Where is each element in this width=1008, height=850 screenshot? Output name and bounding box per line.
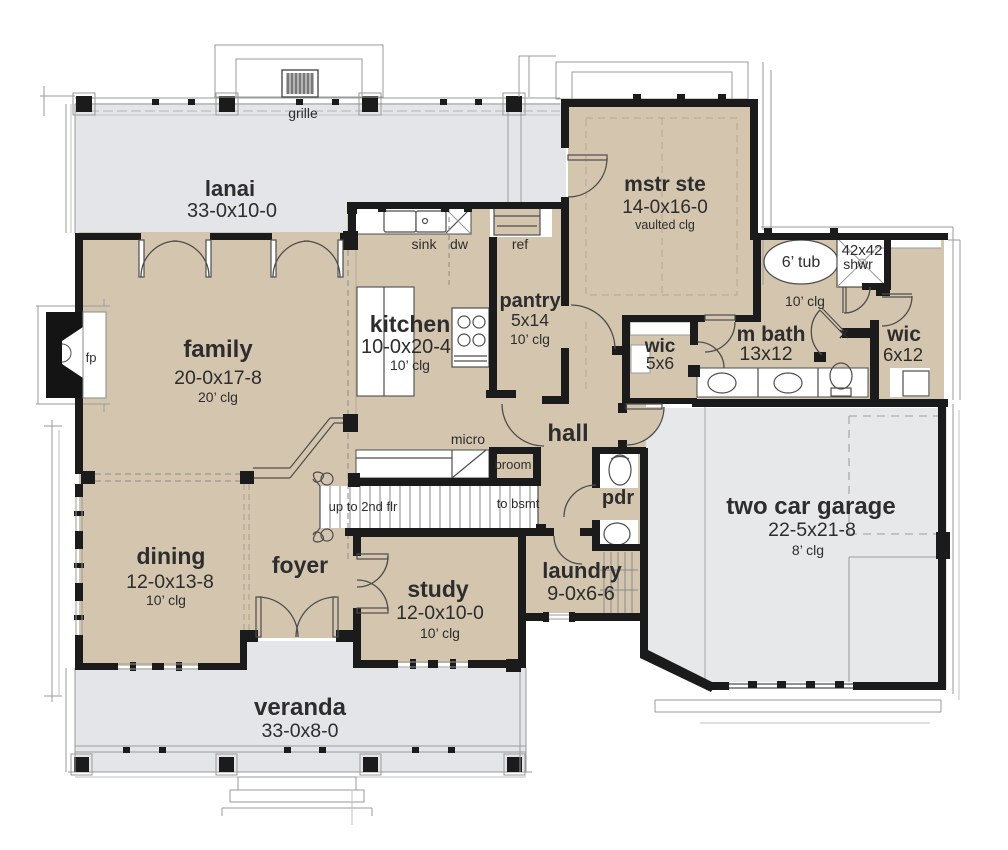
svg-text:10’ clg: 10’ clg [146, 592, 186, 608]
svg-text:14-0x16-0: 14-0x16-0 [622, 197, 708, 218]
svg-text:22-5x21-8: 22-5x21-8 [768, 519, 856, 541]
svg-text:10’ clg: 10’ clg [390, 357, 430, 373]
svg-text:dining: dining [137, 543, 206, 569]
svg-text:10’ clg: 10’ clg [420, 625, 460, 641]
svg-text:pdr: pdr [602, 487, 634, 509]
svg-text:20-0x17-8: 20-0x17-8 [174, 367, 262, 389]
svg-text:sink: sink [412, 236, 438, 252]
svg-text:kitchen: kitchen [370, 311, 451, 337]
svg-text:5x6: 5x6 [646, 353, 674, 373]
svg-text:vaulted clg: vaulted clg [635, 218, 695, 232]
svg-text:ref: ref [512, 236, 528, 252]
svg-text:grille: grille [288, 105, 318, 121]
svg-text:hall: hall [547, 420, 588, 447]
svg-text:20’ clg: 20’ clg [198, 389, 238, 405]
svg-text:10’ clg: 10’ clg [785, 293, 825, 309]
svg-text:laundry: laundry [542, 558, 622, 583]
svg-text:10-0x20-4: 10-0x20-4 [361, 336, 451, 358]
svg-text:dw: dw [450, 236, 469, 252]
svg-text:12-0x10-0: 12-0x10-0 [396, 602, 484, 624]
svg-text:lanai: lanai [205, 176, 255, 201]
svg-text:pantry: pantry [499, 290, 561, 312]
svg-text:33-0x10-0: 33-0x10-0 [187, 200, 277, 222]
svg-text:up to 2nd flr: up to 2nd flr [329, 499, 398, 514]
svg-text:study: study [407, 576, 469, 602]
svg-text:to bsmt: to bsmt [497, 496, 540, 511]
svg-text:12-0x13-8: 12-0x13-8 [126, 571, 214, 593]
svg-text:foyer: foyer [272, 552, 328, 578]
svg-text:5x14: 5x14 [511, 310, 549, 330]
svg-text:6’ tub: 6’ tub [782, 254, 821, 271]
svg-text:wic: wic [886, 323, 921, 346]
svg-text:10’ clg: 10’ clg [510, 331, 550, 347]
svg-text:two car garage: two car garage [726, 493, 895, 520]
svg-text:fp: fp [86, 350, 97, 365]
svg-text:family: family [183, 336, 253, 363]
svg-text:33-0x8-0: 33-0x8-0 [262, 720, 339, 742]
svg-text:veranda: veranda [254, 694, 347, 721]
svg-text:9-0x6-6: 9-0x6-6 [547, 583, 615, 605]
svg-text:13x12: 13x12 [739, 343, 792, 365]
svg-text:broom: broom [495, 457, 532, 472]
svg-text:shwr: shwr [843, 256, 873, 272]
svg-text:6x12: 6x12 [883, 344, 923, 365]
svg-text:8’ clg: 8’ clg [792, 542, 824, 558]
svg-text:mstr ste: mstr ste [624, 173, 706, 196]
svg-text:micro: micro [451, 431, 485, 447]
